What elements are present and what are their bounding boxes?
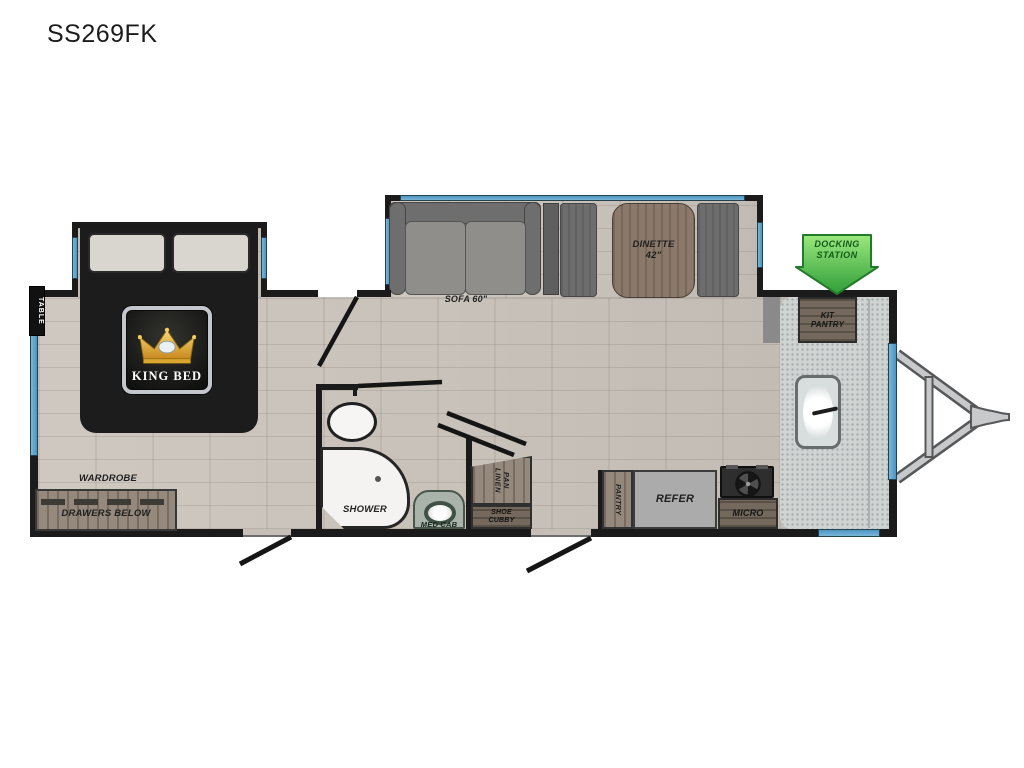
refer-label: REFER: [656, 493, 694, 506]
counter-seam: [868, 299, 870, 528]
cooktop: [720, 466, 774, 498]
kit-pantry: KIT PANTRY: [798, 297, 857, 343]
dinette-label: DINETTE: [632, 240, 674, 251]
bed-slide-window-right: [261, 237, 267, 279]
sofa-cushion-right: [465, 221, 526, 295]
front-wall-window: [888, 343, 897, 480]
king-bed-badge: KING BED: [122, 306, 212, 394]
bath-door-hinge: [353, 384, 357, 396]
sofa-cushion-left: [405, 221, 466, 295]
table-label: TABLE: [29, 286, 45, 336]
pillow-left: [88, 233, 166, 273]
pillow-right: [172, 233, 250, 273]
shower-label: SHOWER: [323, 505, 407, 516]
sofa-arm-right: [524, 202, 541, 295]
model-title: SS269FK: [47, 20, 158, 49]
left-wall-window: [30, 330, 38, 456]
console: [543, 203, 559, 295]
shoe-cubby: SHOE CUBBY: [471, 505, 532, 529]
micro-label: MICRO: [733, 508, 764, 518]
docking-station: DOCKING STATION: [795, 234, 879, 296]
king-bed-label: KING BED: [132, 369, 202, 390]
wardrobe-drawers: DRAWERS BELOW: [35, 489, 177, 531]
dinette-table: DINETTE 42": [612, 203, 695, 298]
entry-door-1-threshold: [243, 529, 291, 537]
bath-wall-top: [316, 384, 358, 390]
refer: REFER: [633, 470, 717, 529]
wall-top-3: [357, 290, 391, 297]
dinette-bench-left: [560, 203, 597, 297]
floorplan-page: SS269FK KING BED: [0, 0, 1024, 768]
kit-label: KIT: [821, 311, 835, 320]
bed-slide-window-left: [72, 237, 78, 279]
pan-label: PAN: [502, 468, 511, 493]
dinette-bench-right: [697, 203, 739, 297]
wall-top-2: [267, 290, 318, 297]
sofa-slide-window-right: [757, 222, 763, 268]
wall-jog: [763, 297, 780, 343]
micro: MICRO: [718, 498, 778, 529]
cooktop-knob-right: [756, 465, 768, 469]
hitch-coupler: [971, 406, 1009, 428]
sofa-slide-window-top: [400, 195, 745, 201]
cooktop-knob-left: [726, 465, 738, 469]
entry-door-1-swing: [240, 537, 291, 564]
burner-icon: [734, 470, 762, 498]
sofa-arm-left: [389, 202, 406, 295]
toilet: [327, 402, 377, 442]
linen-label: LINEN: [493, 468, 502, 493]
dinette-size-label: 42": [646, 251, 662, 262]
crown-icon: [138, 327, 196, 369]
drawers-below-label: DRAWERS BELOW: [37, 509, 175, 520]
docking-arrow-icon: [795, 234, 879, 296]
wall-bottom-2: [291, 529, 531, 537]
pantry-label: PANTRY: [613, 484, 622, 515]
vanity-sink: [424, 501, 456, 525]
entry-door-2-threshold: [531, 529, 591, 537]
pantry: PANTRY: [602, 470, 633, 529]
shoe-label: SHOE: [491, 509, 512, 517]
med-cab-vanity: [413, 490, 465, 529]
kitchen-sink: [795, 375, 841, 449]
trailer-hitch: [897, 340, 1013, 490]
entry-door-2-swing: [527, 538, 591, 571]
pan-linen-label: PAN LINEN: [493, 468, 510, 493]
cubby-label: CUBBY: [489, 517, 515, 525]
sofa: [389, 202, 541, 297]
shower-drain: [375, 476, 381, 482]
drawer-handles: [41, 499, 171, 505]
bottom-wall-window: [818, 529, 880, 537]
kit-pantry-label: PANTRY: [811, 320, 844, 329]
